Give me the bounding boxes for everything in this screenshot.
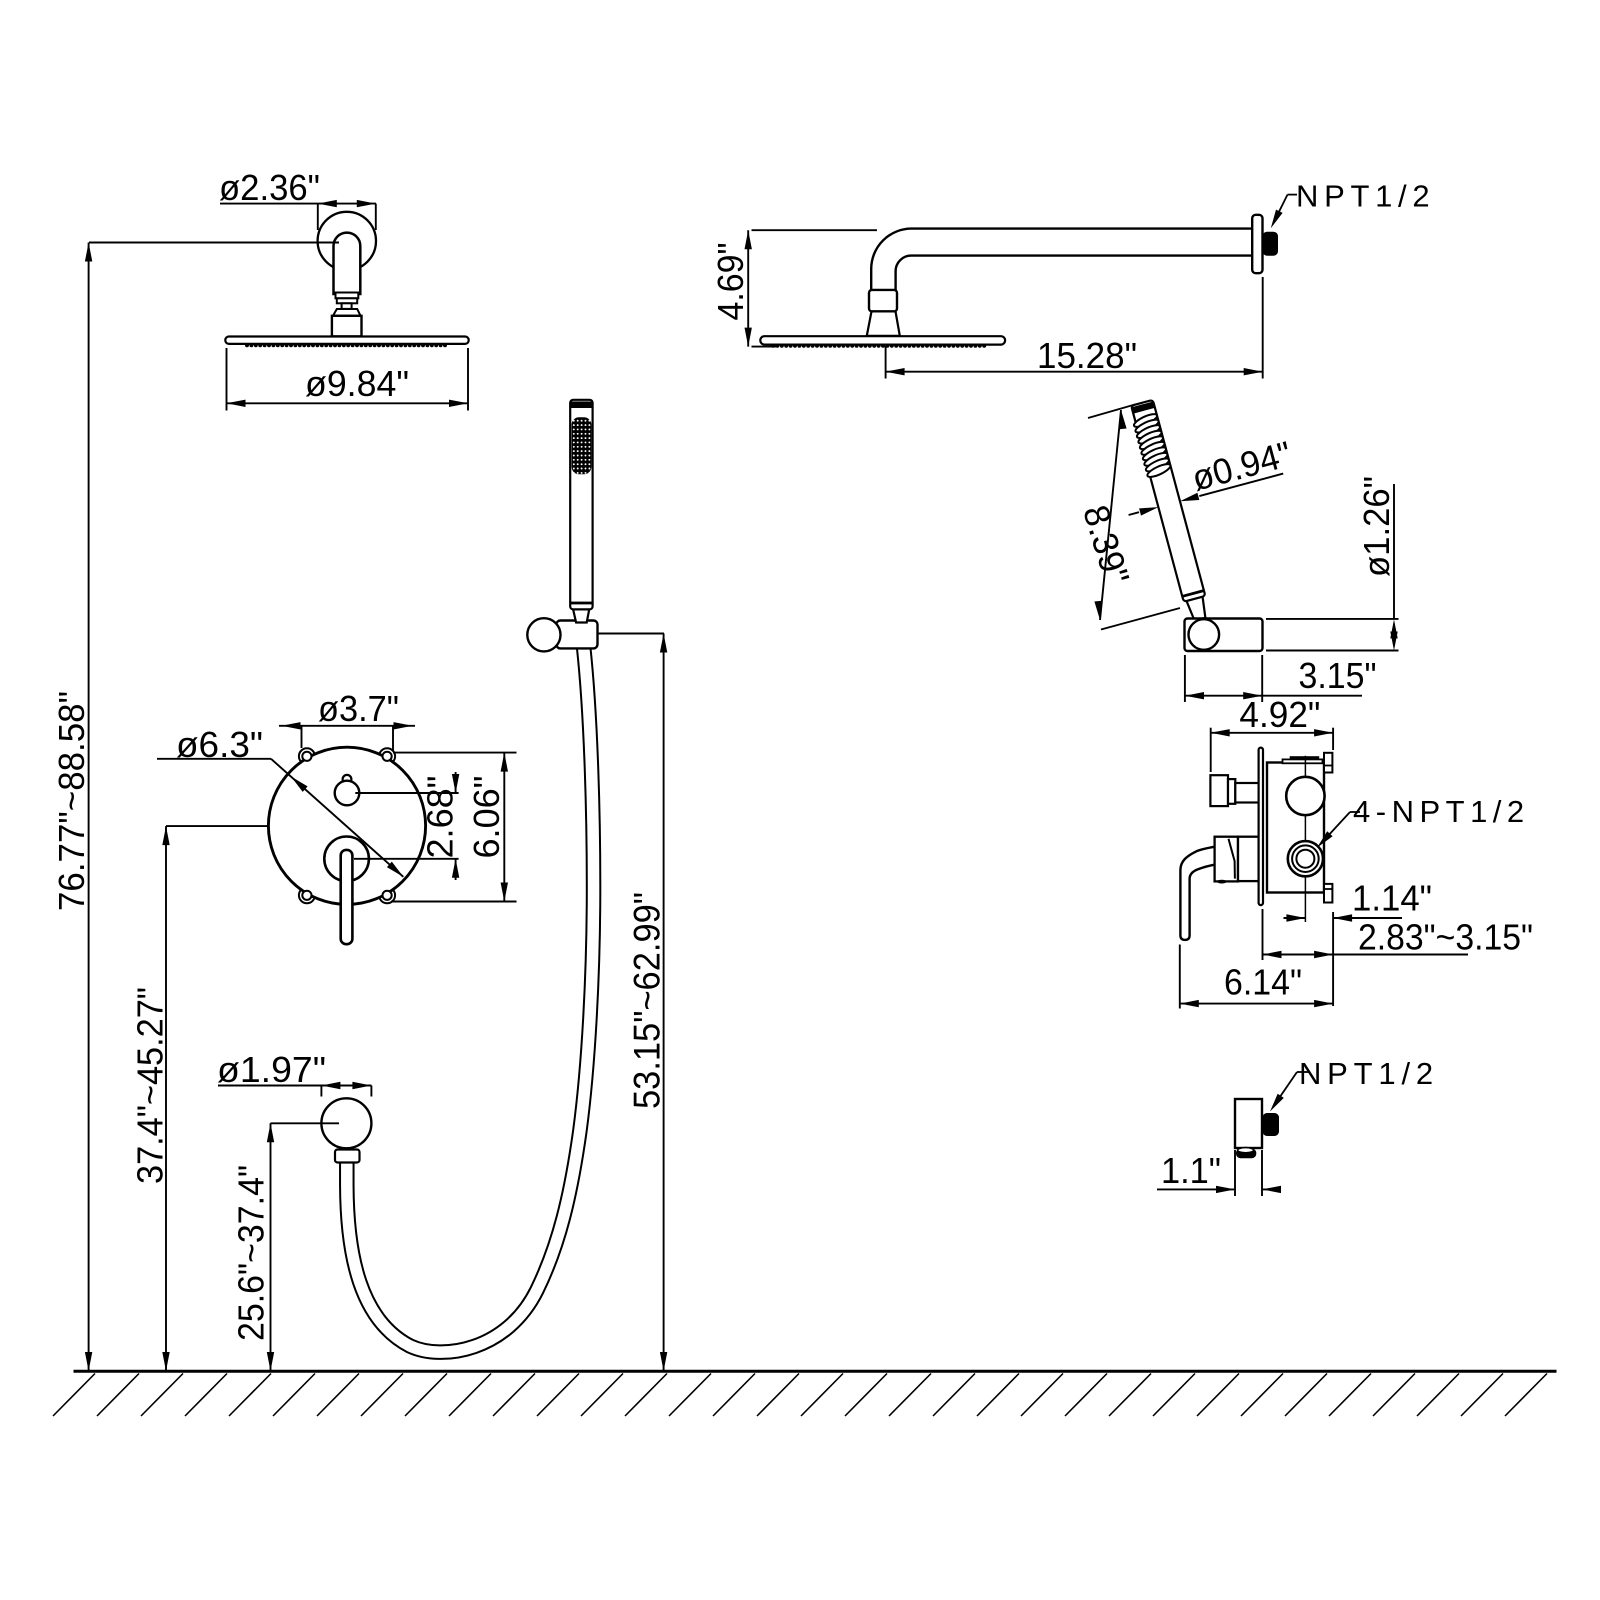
svg-text:3.15": 3.15" xyxy=(1299,655,1377,696)
svg-text:15.28": 15.28" xyxy=(1037,335,1137,376)
svg-text:1.14": 1.14" xyxy=(1352,878,1432,919)
svg-text:1.1": 1.1" xyxy=(1161,1150,1221,1191)
svg-text:25.6"~37.4": 25.6"~37.4" xyxy=(231,1165,272,1341)
svg-text:ø1.97": ø1.97" xyxy=(217,1049,326,1090)
svg-text:2.68": 2.68" xyxy=(420,776,461,859)
svg-text:ø3.7": ø3.7" xyxy=(318,688,399,729)
svg-text:2.83"~3.15": 2.83"~3.15" xyxy=(1358,917,1533,958)
svg-text:53.15"~62.99": 53.15"~62.99" xyxy=(627,892,668,1109)
svg-text:ø1.26": ø1.26" xyxy=(1356,476,1397,577)
svg-text:6.14": 6.14" xyxy=(1224,962,1302,1003)
svg-text:NPT1/2: NPT1/2 xyxy=(1296,179,1435,214)
svg-text:4.92": 4.92" xyxy=(1239,694,1320,735)
svg-text:6.06": 6.06" xyxy=(466,776,507,859)
svg-text:4.69": 4.69" xyxy=(710,243,751,321)
svg-text:4-NPT1/2: 4-NPT1/2 xyxy=(1353,794,1530,829)
svg-text:ø2.36": ø2.36" xyxy=(219,167,320,208)
svg-text:37.4"~45.27": 37.4"~45.27" xyxy=(130,987,171,1184)
svg-text:76.77"~88.58": 76.77"~88.58" xyxy=(51,691,92,911)
svg-text:NPT1/2: NPT1/2 xyxy=(1299,1056,1439,1091)
svg-text:ø9.84": ø9.84" xyxy=(305,363,409,404)
